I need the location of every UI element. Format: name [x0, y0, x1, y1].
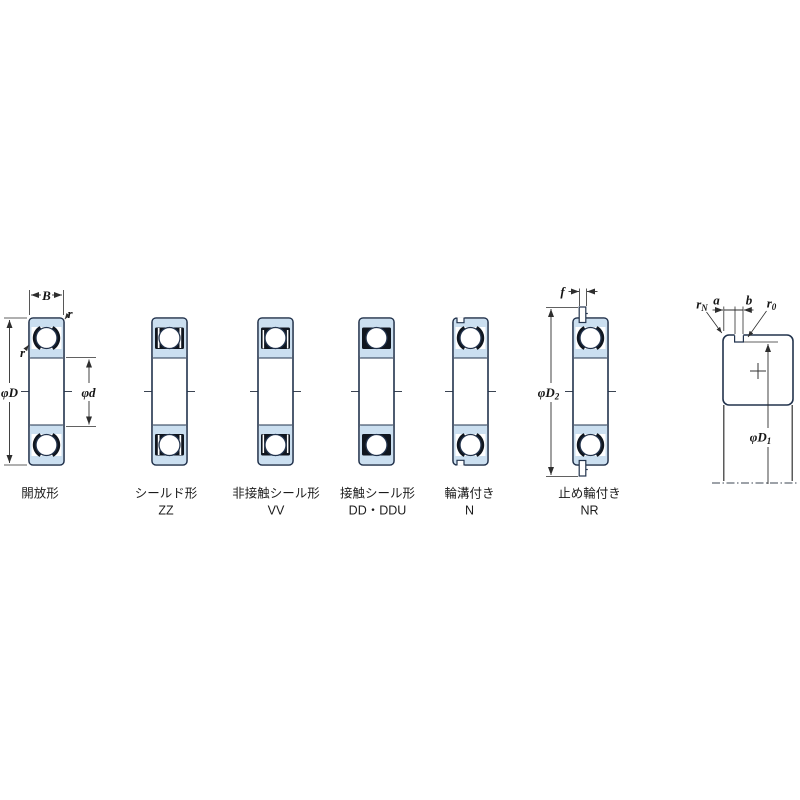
bearing-contact-seal-dd	[359, 318, 394, 465]
label-fillet-rn: rN	[696, 297, 708, 314]
dim-fillet-r0: r0	[748, 296, 777, 338]
code-type-contact: DD・DDU	[349, 504, 407, 518]
label-groove-diameter: φD1	[750, 430, 772, 447]
code-type-shielded: ZZ	[158, 504, 174, 518]
label-type-contact: 接触シール形	[340, 486, 416, 501]
label-chamfer-r-inner: r	[20, 345, 26, 360]
snapring-groove-detail: a b rN r0 φD1	[696, 293, 793, 485]
label-type-open: 開放形	[21, 486, 59, 501]
dim-chamfer-r-inner: r	[20, 345, 29, 360]
label-snapring-width-f: f	[560, 284, 566, 299]
label-outer-diameter: φD	[1, 385, 19, 400]
dim-snapring-width-f: f	[560, 284, 597, 306]
dim-width-B: B	[30, 288, 64, 315]
label-type-groove: 輪溝付き	[444, 486, 494, 501]
label-fillet-r0: r0	[767, 296, 777, 313]
code-type-noncontact: VV	[268, 504, 285, 518]
bearing-shielded-zz	[152, 318, 187, 465]
dim-groove-width-b: b	[746, 293, 753, 308]
label-chamfer-r-outer: r	[67, 306, 73, 321]
label-groove-position-a: a	[713, 293, 720, 308]
code-type-groove: N	[465, 504, 474, 518]
type-captions: 開放形 シールド形 非接触シール形 接触シール形 輪溝付き 止め輪付き ZZ V…	[21, 486, 621, 518]
dim-bore-diameter: φd	[66, 358, 96, 427]
label-bore-diameter: φd	[81, 385, 96, 400]
code-type-snapring: NR	[580, 504, 598, 518]
label-snapring-od: φD2	[538, 385, 560, 402]
bearing-types-diagram: B r r φD φd f φD2	[0, 0, 800, 800]
bearing-open	[29, 318, 64, 465]
label-groove-width-b: b	[746, 293, 753, 308]
label-type-shielded: シールド形	[135, 487, 198, 501]
label-type-noncontact: 非接触シール形	[232, 486, 320, 501]
dim-chamfer-r-outer: r	[65, 306, 74, 321]
bearing-snapring-nr	[573, 307, 608, 476]
dim-snapring-od: φD2	[538, 308, 578, 477]
bearing-types-diagram-page: B r r φD φd f φD2	[0, 0, 800, 800]
bearing-groove-n	[453, 317, 488, 466]
label-type-snapring: 止め輪付き	[558, 486, 621, 501]
label-width-B: B	[41, 288, 51, 303]
bearing-noncontact-seal-vv	[258, 318, 293, 465]
